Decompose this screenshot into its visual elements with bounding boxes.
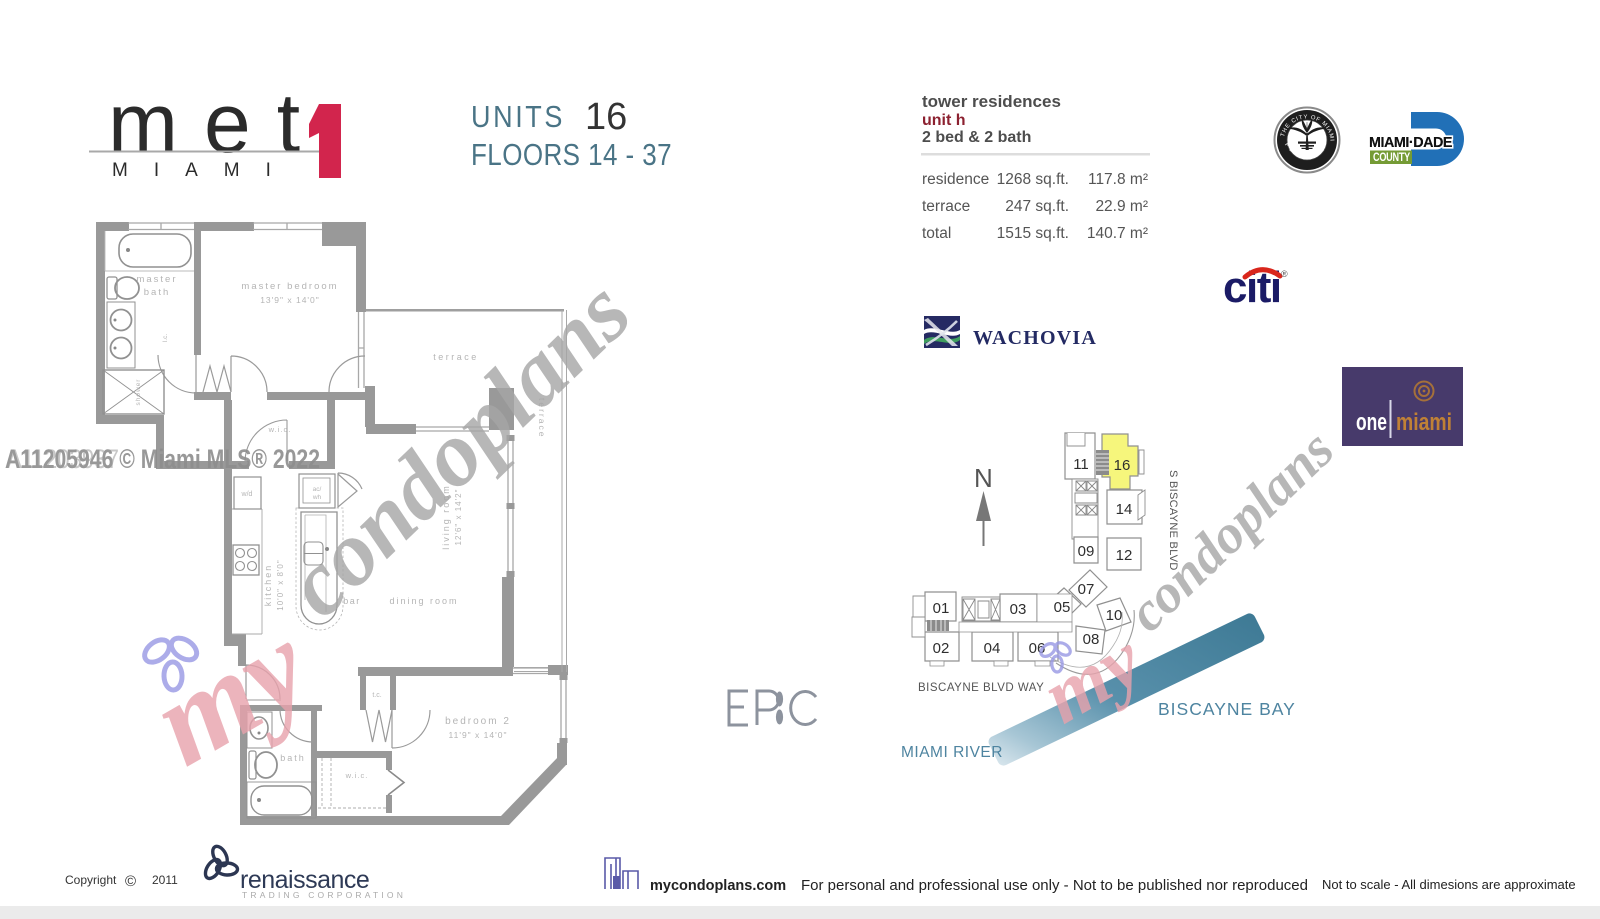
svg-text:bedroom 2: bedroom 2 [445, 716, 511, 727]
svg-text:UNITS: UNITS [471, 99, 565, 134]
svg-text:FLOORS 14 - 37: FLOORS 14 - 37 [471, 137, 672, 172]
svg-text:shower: shower [135, 379, 142, 406]
svg-text:wh: wh [312, 494, 322, 501]
svg-text:2011: 2011 [152, 873, 178, 887]
svg-text:tower residences: tower residences [922, 92, 1061, 111]
svg-text:bath: bath [144, 287, 171, 298]
svg-text:Not to scale - All dimesions a: Not to scale - All dimesions are approxi… [1322, 877, 1576, 892]
svg-text:total: total [922, 225, 951, 242]
svg-text:For personal and professional: For personal and professional use only -… [801, 877, 1308, 894]
svg-text:22.9 m²: 22.9 m² [1095, 198, 1148, 215]
svg-text:09: 09 [1078, 543, 1095, 560]
svg-text:l.c.: l.c. [162, 334, 169, 343]
svg-text:t.c.: t.c. [372, 692, 381, 699]
svg-text:WACHOVIA: WACHOVIA [973, 327, 1097, 349]
svg-text:1268 sq.ft.: 1268 sq.ft. [997, 171, 1069, 188]
svg-text:14: 14 [1116, 501, 1133, 518]
svg-text:COUNTY: COUNTY [1373, 152, 1410, 164]
svg-text:w.i.c.: w.i.c. [345, 771, 369, 780]
svg-text:ac/: ac/ [313, 486, 322, 493]
svg-text:MIAMI: MIAMI [112, 160, 297, 181]
svg-text:BISCAYNE BAY: BISCAYNE BAY [1158, 699, 1296, 719]
svg-text:N: N [974, 463, 993, 493]
svg-text:met: met [108, 76, 326, 170]
svg-text:16: 16 [1114, 457, 1131, 474]
svg-text:16: 16 [585, 96, 627, 138]
svg-text:residence: residence [922, 171, 989, 188]
svg-text:03: 03 [1010, 601, 1027, 618]
svg-text:140.7 m²: 140.7 m² [1087, 225, 1148, 242]
svg-text:02: 02 [933, 640, 950, 657]
svg-text:w.i.c.: w.i.c. [268, 425, 292, 434]
svg-text:BISCAYNE BLVD WAY: BISCAYNE BLVD WAY [918, 682, 1044, 694]
svg-text:2 bed & 2 bath: 2 bed & 2 bath [922, 129, 1031, 146]
svg-text:miami: miami [1396, 409, 1452, 436]
svg-text:247 sq.ft.: 247 sq.ft. [1005, 198, 1069, 215]
svg-text:kitchen: kitchen [263, 564, 273, 607]
svg-text:dining room: dining room [389, 596, 458, 606]
svg-text:05: 05 [1054, 599, 1071, 616]
svg-text:13'9" x 14'0": 13'9" x 14'0" [260, 295, 320, 305]
svg-text:MIAMI RIVER: MIAMI RIVER [901, 744, 1003, 761]
svg-text:terrace: terrace [922, 198, 970, 215]
svg-text:12: 12 [1116, 547, 1133, 564]
svg-text:terrace: terrace [433, 352, 479, 362]
svg-text:unit h: unit h [922, 112, 966, 129]
svg-text:master bedroom: master bedroom [241, 281, 338, 292]
svg-text:11'9" x 14'0": 11'9" x 14'0" [449, 730, 508, 740]
svg-text:bath: bath [280, 753, 306, 763]
svg-text:11: 11 [1073, 456, 1089, 473]
svg-text:01: 01 [933, 600, 950, 617]
svg-text:®: ® [1281, 269, 1288, 279]
svg-text:04: 04 [984, 640, 1001, 657]
svg-text:mycondoplans.com: mycondoplans.com [650, 878, 786, 894]
svg-text:TRADING CORPORATION: TRADING CORPORATION [242, 890, 406, 900]
svg-text:MIAMI·DADE: MIAMI·DADE [1369, 134, 1452, 151]
svg-text:1515 sq.ft.: 1515 sq.ft. [997, 225, 1069, 242]
svg-text:one: one [1356, 409, 1387, 436]
svg-text:A11203937: A11203937 [7, 444, 119, 474]
svg-text:©: © [125, 873, 136, 890]
svg-text:w/d: w/d [241, 491, 253, 498]
svg-text:master: master [136, 274, 177, 285]
svg-text:Copyright: Copyright [65, 873, 117, 887]
svg-text:07: 07 [1078, 581, 1095, 598]
svg-text:117.8 m²: 117.8 m² [1088, 171, 1148, 188]
